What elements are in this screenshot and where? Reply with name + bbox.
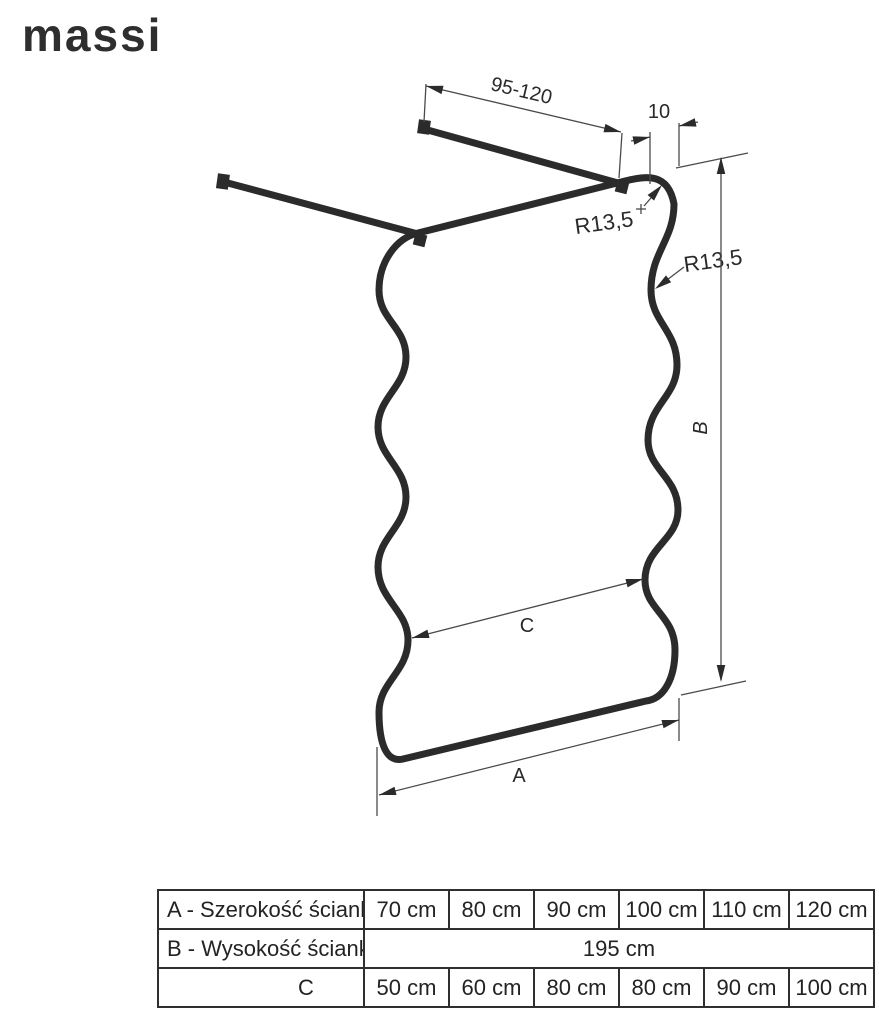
table-row-height: B - Wysokość ścianki 195 cm — [158, 929, 874, 968]
arrowhead — [632, 133, 650, 145]
ext-line-bar-right — [619, 133, 622, 178]
table-cell: 90 cm — [534, 890, 619, 929]
support-bar-top — [424, 129, 618, 183]
arrowhead — [425, 82, 444, 94]
table-cell: 100 cm — [619, 890, 704, 929]
row-label-height: B - Wysokość ścianki — [158, 929, 364, 968]
arrowhead — [717, 665, 726, 682]
table-cell: 80 cm — [619, 968, 704, 1007]
arrowhead — [678, 118, 696, 130]
arrowhead — [378, 787, 397, 799]
ext-line-bar-left — [424, 84, 426, 122]
wall-mount-left — [216, 173, 230, 190]
arrowhead — [603, 124, 622, 136]
dim-height-label: B — [690, 421, 712, 434]
table-cell: 110 cm — [704, 890, 789, 929]
table-row-width: A - Szerokość ścianki 70 cm 80 cm 90 cm … — [158, 890, 874, 929]
table-cell: 120 cm — [789, 890, 874, 929]
table-cell: 90 cm — [704, 968, 789, 1007]
support-bar-left — [224, 182, 418, 234]
arrowhead — [625, 575, 644, 588]
technical-drawing: 95-120 10 R13,5 R13,5 B C A — [0, 0, 879, 1020]
table-cell: 70 cm — [364, 890, 449, 929]
row-label-width: A - Szerokość ścianki — [158, 890, 364, 929]
table-cell: 50 cm — [364, 968, 449, 1007]
table-row-inner-width: C 50 cm 60 cm 80 cm 80 cm 90 cm 100 cm — [158, 968, 874, 1007]
table-cell: 100 cm — [789, 968, 874, 1007]
dim-inner-width-label: C — [520, 615, 534, 637]
radius-side-label: R13,5 — [682, 244, 744, 277]
dim-offset-label: 10 — [648, 101, 670, 123]
dimensions-table: A - Szerokość ścianki 70 cm 80 cm 90 cm … — [157, 889, 875, 1008]
panel-outline — [378, 178, 678, 760]
ext-line-height-top — [676, 153, 748, 168]
table-cell: 60 cm — [449, 968, 534, 1007]
arrowhead — [661, 716, 680, 728]
dim-width-label: A — [512, 765, 526, 787]
ext-line-height-bottom — [681, 681, 746, 695]
arrowhead — [411, 630, 430, 643]
table-cell-merged: 195 cm — [364, 929, 874, 968]
table-cell: 80 cm — [449, 890, 534, 929]
table-cell: 80 cm — [534, 968, 619, 1007]
radius-top-label: R13,5 — [573, 206, 635, 239]
row-label-inner-width: C — [158, 968, 364, 1007]
